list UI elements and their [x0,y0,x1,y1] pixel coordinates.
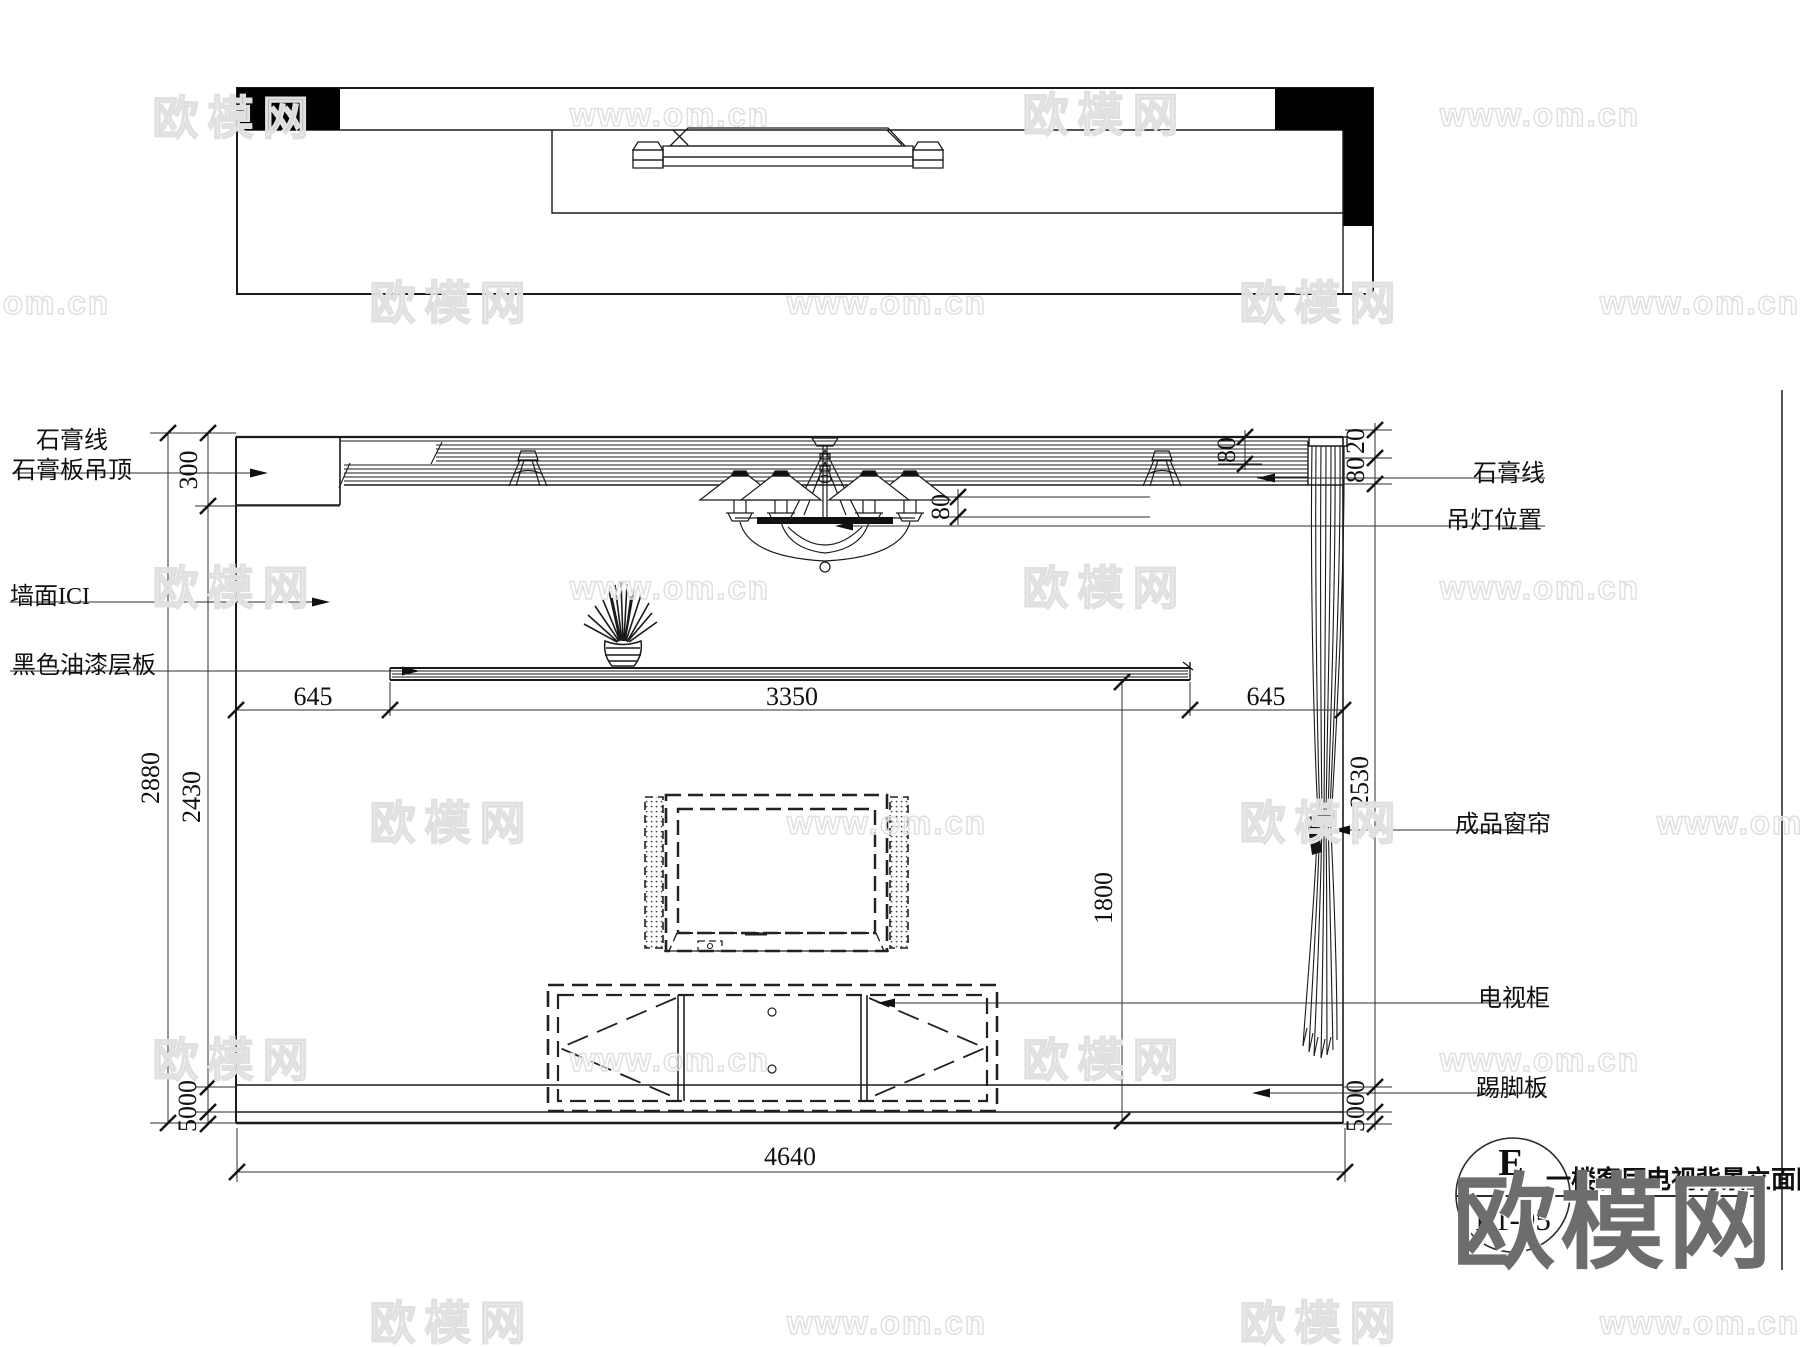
black-paint-shelf [390,662,1193,680]
watermark-text: www.om.cn [0,284,110,322]
dim-left-offset: 645 [294,682,333,712]
cad-drawing-sheet: 石膏线 石膏板吊顶 墙面ICI 黑色油漆层板 石膏线 吊灯位置 成品窗帘 电视柜… [0,0,1800,1347]
dim-total-height: 2880 [136,752,166,804]
label-wall-ici: 墙面ICI [10,576,90,611]
plan-tv-niche [552,130,1343,213]
brand-logo-watermark: 欧模网 [1452,1138,1776,1289]
skirting-lines [236,1085,1343,1123]
watermark-text: 欧模网 [153,1024,318,1090]
watermark-text: www.om.cn [787,804,987,842]
watermark-text: www.om.cn [570,569,770,607]
watermark-text: www.om.cn [1440,569,1640,607]
watermark-text: 欧模网 [1023,1024,1188,1090]
watermark-text: 欧模网 [153,552,318,618]
chandelier-icon [700,438,950,572]
watermark-text: www.om.cn [1600,1304,1800,1342]
watermark-text: www.om.cn [1657,804,1800,842]
dim-skirting-right: 5000 [1341,1080,1371,1132]
dim-total-width: 4640 [764,1142,816,1172]
watermark-text: www.om.cn [570,1041,770,1079]
dim-crown-top-gap: 20 [1341,428,1371,454]
plan-column-right [1275,88,1373,130]
watermark-text: 欧模网 [153,82,318,148]
watermark-text: 欧模网 [370,267,535,333]
curtain-icon [1303,437,1347,1058]
watermark-text: www.om.cn [1600,284,1800,322]
dimension-lines [150,422,1392,1182]
dim-ceiling-drop: 300 [174,451,204,490]
dim-inner-height: 2430 [177,771,207,823]
watermark-text: www.om.cn [1440,1041,1640,1079]
dim-right-offset: 645 [1247,682,1286,712]
plan-column-right-leg [1343,130,1373,226]
watermark-text: 欧模网 [1240,1287,1405,1347]
watermark-text: 欧模网 [1240,787,1405,853]
label-plaster-line-right: 石膏线 [1473,453,1545,488]
watermark-text: 欧模网 [1023,552,1188,618]
watermark-text: 欧模网 [370,787,535,853]
watermark-text: www.om.cn [787,1304,987,1342]
label-black-paint-shelf: 黑色油漆层板 [12,645,156,680]
watermark-text: 欧模网 [370,1287,535,1347]
watermark-text: 欧模网 [1023,79,1188,145]
elevation-view [236,437,1347,1123]
label-finished-curtain: 成品窗帘 [1455,804,1551,839]
watermark-text: 欧模网 [1240,267,1405,333]
dim-crown-height: 80 [1212,437,1242,463]
watermark-text: www.om.cn [570,96,770,134]
dimension-ticks [160,422,1383,1180]
tv-plan-symbol [633,128,943,168]
watermark-text: www.om.cn [1440,96,1640,134]
plan-view [237,88,1373,294]
label-tv-cabinet: 电视柜 [1478,978,1550,1013]
label-pendant-position: 吊灯位置 [1446,500,1542,535]
dim-lamp-drop: 80 [926,494,956,520]
watermark-text: www.om.cn [787,284,987,322]
dim-tv-height: 1800 [1089,872,1119,924]
dim-crown-height-2: 80 [1341,457,1371,483]
label-gypsum-ceiling: 石膏板吊顶 [12,450,132,485]
dim-shelf-length: 3350 [766,682,818,712]
